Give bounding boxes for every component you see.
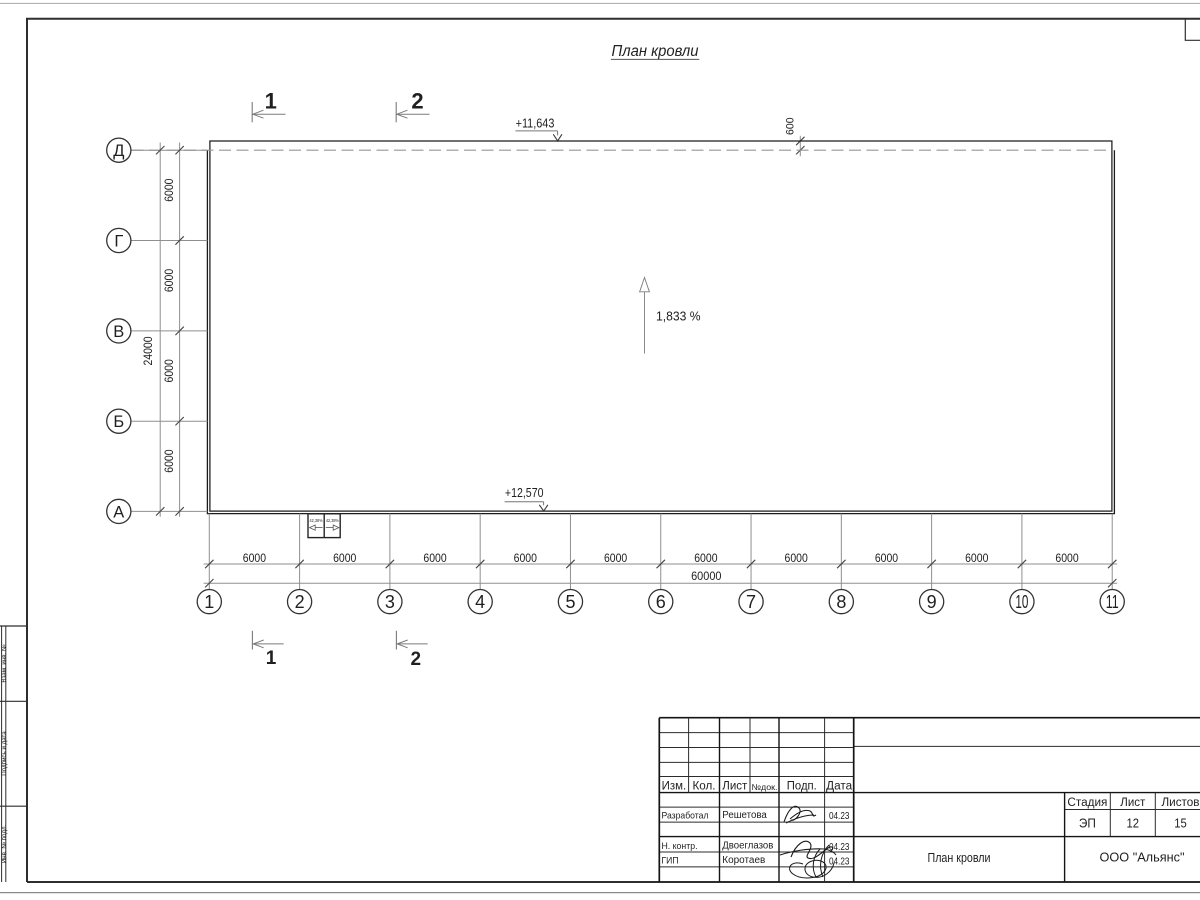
svg-text:5: 5	[565, 592, 575, 612]
svg-text:04.23: 04.23	[829, 857, 850, 868]
svg-text:2: 2	[411, 89, 423, 114]
svg-text:10: 10	[1015, 592, 1028, 612]
svg-text:6000: 6000	[785, 551, 809, 565]
svg-text:2: 2	[295, 592, 305, 612]
svg-text:4: 4	[475, 592, 485, 612]
svg-text:6000: 6000	[875, 551, 899, 565]
svg-text:6000: 6000	[162, 269, 176, 293]
svg-text:Лист: Лист	[722, 780, 748, 792]
svg-text:1: 1	[204, 592, 214, 612]
svg-text:+11,643: +11,643	[516, 115, 555, 130]
svg-text:7: 7	[746, 592, 756, 612]
svg-text:11: 11	[1106, 592, 1119, 612]
svg-text:Н. контр.: Н. контр.	[662, 841, 698, 852]
svg-text:60000: 60000	[691, 569, 722, 583]
svg-text:04.23: 04.23	[829, 811, 850, 822]
svg-text:24000: 24000	[141, 336, 155, 365]
svg-text:План кровли: План кровли	[612, 43, 699, 60]
svg-text:600: 600	[784, 117, 796, 135]
svg-text:Разработал: Разработал	[662, 810, 709, 821]
svg-text:6000: 6000	[1055, 551, 1079, 565]
svg-text:6000: 6000	[162, 449, 176, 473]
svg-text:Решетова: Решетова	[722, 810, 767, 821]
svg-text:Коротаев: Коротаев	[722, 855, 765, 866]
svg-text:Изм.: Изм.	[662, 780, 687, 792]
svg-text:8: 8	[836, 592, 846, 612]
svg-text:Лист: Лист	[1120, 797, 1146, 809]
svg-text:9: 9	[927, 592, 937, 612]
svg-text:ЭП: ЭП	[1079, 816, 1096, 831]
svg-text:6: 6	[656, 592, 666, 612]
svg-text:Дата: Дата	[826, 780, 853, 792]
svg-text:2: 2	[411, 649, 422, 670]
svg-text:+12,570: +12,570	[505, 485, 544, 500]
svg-text:6000: 6000	[514, 551, 538, 565]
svg-text:42,38%: 42,38%	[326, 518, 340, 524]
svg-text:6000: 6000	[965, 551, 989, 565]
svg-text:6000: 6000	[604, 551, 628, 565]
svg-text:3: 3	[385, 592, 395, 612]
svg-text:Стадия: Стадия	[1067, 797, 1107, 809]
svg-text:6000: 6000	[243, 551, 267, 565]
svg-text:1: 1	[266, 648, 277, 669]
svg-text:Г: Г	[114, 233, 123, 251]
svg-text:6000: 6000	[694, 551, 718, 565]
svg-text:В: В	[113, 323, 124, 341]
svg-text:№док.: №док.	[752, 782, 778, 792]
svg-text:План кровли: План кровли	[928, 851, 991, 865]
svg-text:ООО "Альянс": ООО "Альянс"	[1100, 850, 1185, 865]
svg-text:6000: 6000	[162, 359, 176, 383]
svg-text:1,833 %: 1,833 %	[656, 309, 701, 324]
svg-text:6000: 6000	[333, 551, 357, 565]
svg-text:Подп.: Подп.	[787, 780, 817, 792]
svg-text:Д: Д	[113, 142, 124, 160]
svg-text:6000: 6000	[423, 551, 447, 565]
svg-text:Взам. инв. №: Взам. инв. №	[1, 644, 8, 683]
svg-text:ГИП: ГИП	[662, 856, 679, 867]
svg-text:12: 12	[1127, 816, 1140, 831]
svg-text:15: 15	[1174, 816, 1187, 831]
svg-text:Подпись и дата: Подпись и дата	[1, 731, 8, 776]
svg-text:А: А	[113, 503, 124, 521]
svg-text:42,38%: 42,38%	[310, 518, 324, 524]
svg-text:6000: 6000	[162, 178, 176, 202]
svg-text:1: 1	[265, 89, 277, 114]
svg-text:Двоеглазов: Двоеглазов	[722, 841, 773, 852]
svg-text:Листов: Листов	[1162, 797, 1200, 809]
svg-text:Кол.: Кол.	[693, 780, 716, 792]
svg-text:Б: Б	[113, 413, 124, 431]
svg-text:Инв. № подл.: Инв. № подл.	[1, 824, 8, 863]
